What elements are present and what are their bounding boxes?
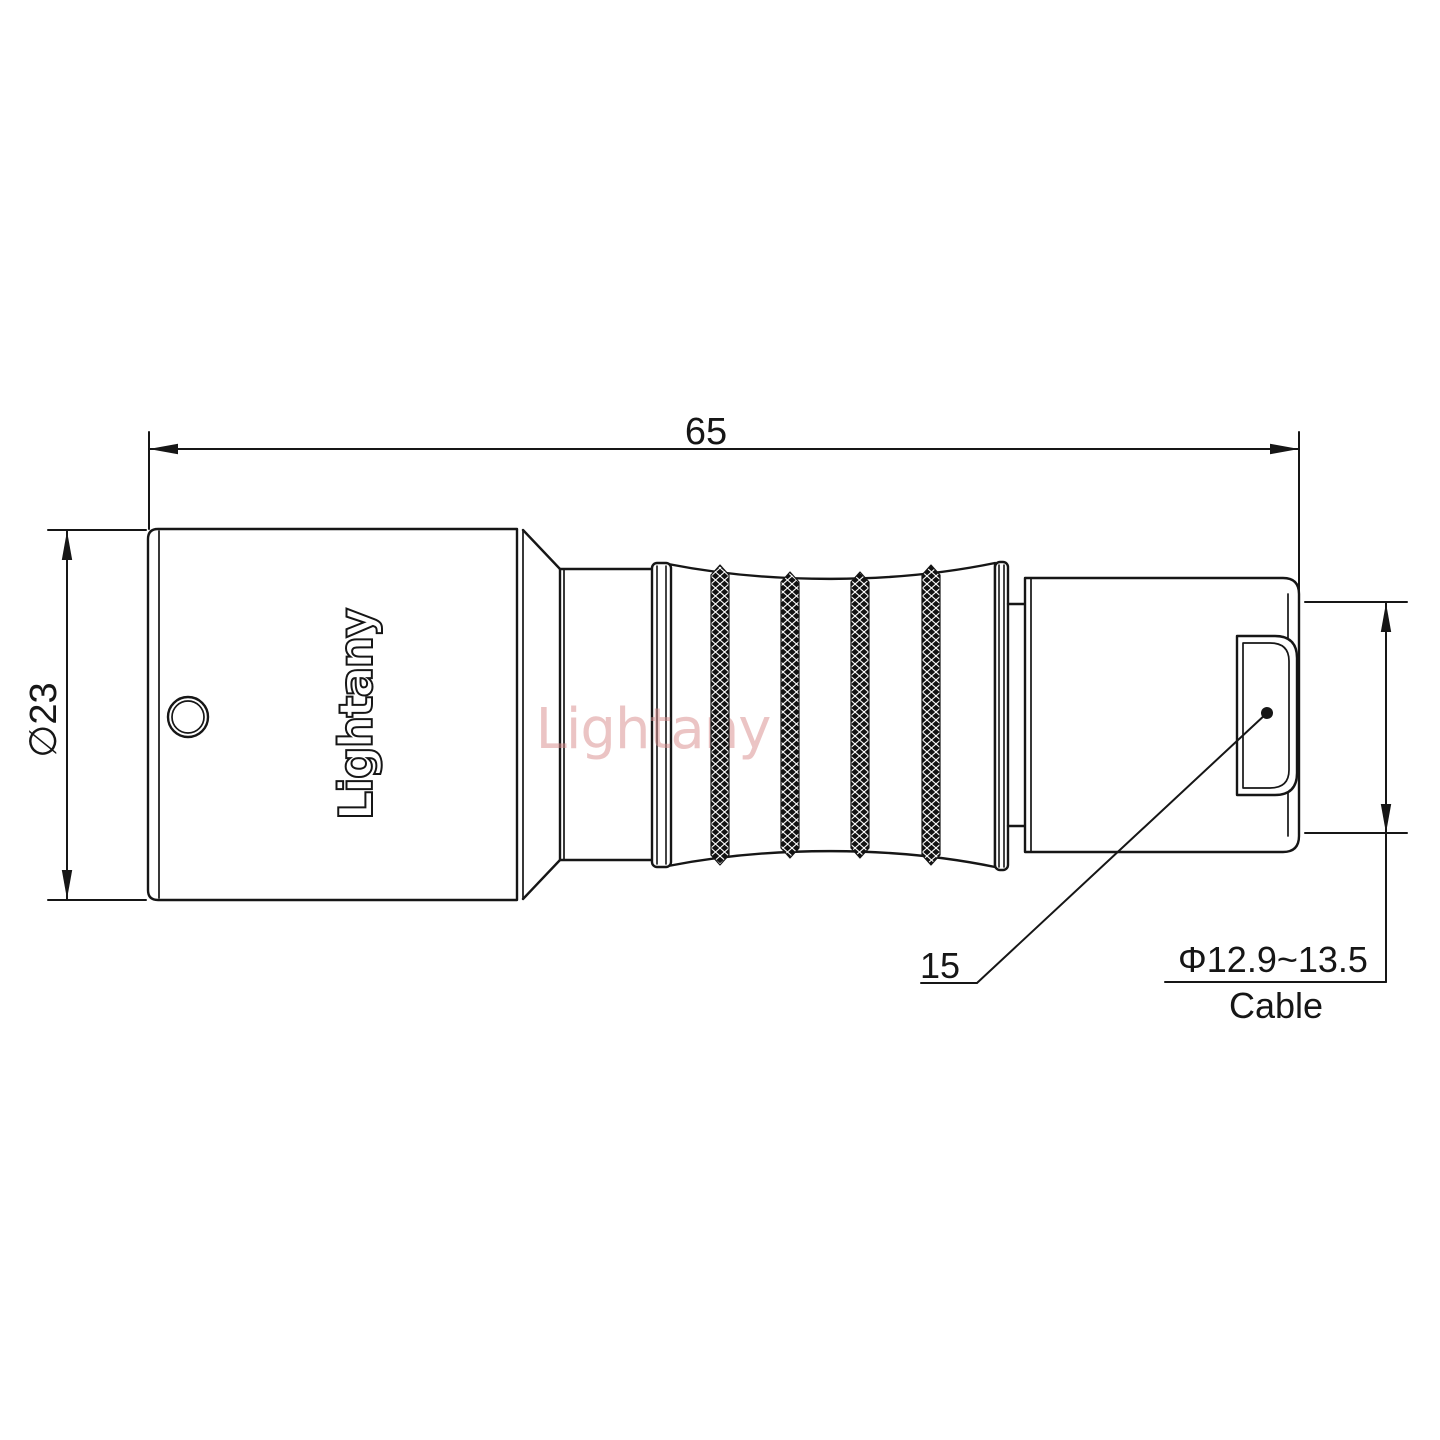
rear-neck [1008, 604, 1025, 826]
knurl-band-4 [922, 565, 940, 865]
dim-text-overall-length: 65 [685, 411, 727, 453]
arrowhead-cable-bottom [1381, 804, 1391, 833]
dim-text-cable-label: Cable [1229, 985, 1323, 1026]
arrowhead-length-right [1270, 444, 1299, 454]
knurl-band-2 [781, 572, 799, 858]
leader-dot [1261, 707, 1273, 719]
knurl-band-3 [851, 572, 869, 858]
arrowhead-cable-top [1381, 603, 1391, 632]
dim-text-rear-nut-length: 15 [920, 945, 960, 986]
watermark-text: Lightany [536, 697, 771, 762]
connector-technical-drawing: Lightany Lightany [0, 0, 1440, 1440]
arrowhead-diameter-bottom [62, 870, 72, 899]
grip-right-collar [995, 562, 1008, 870]
dim-text-cable-diameter-range: Φ12.9~13.5 [1178, 939, 1368, 980]
arrowhead-diameter-top [62, 531, 72, 560]
arrowhead-length-left [149, 444, 178, 454]
knurl-band-1 [711, 565, 729, 865]
body-logo-text: Lightany [329, 608, 383, 821]
dim-text-body-diameter: ∅23 [23, 682, 65, 757]
drawing-page: Lightany Lightany [0, 0, 1440, 1440]
